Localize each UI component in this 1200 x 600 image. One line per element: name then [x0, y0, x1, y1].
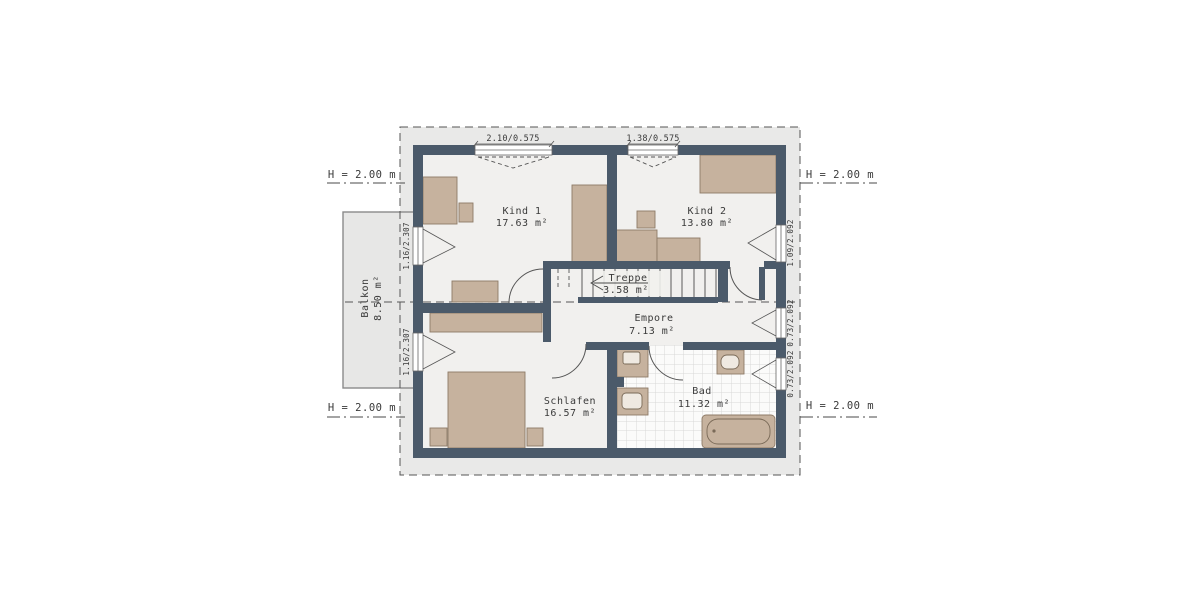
floor-plan-page: Kind 1 17.63 m² Kind 2 13.80 m² Treppe 3… [0, 0, 1200, 600]
chair-kind2 [637, 211, 655, 228]
washbasin-inner [622, 393, 642, 409]
height-mark-top-right: H = 2.00 m [806, 169, 874, 181]
height-mark-bottom-right: H = 2.00 m [806, 400, 874, 412]
room-label-empore: Empore [634, 313, 673, 324]
wardrobe-kind1 [572, 185, 607, 262]
wall-kind1-kind2 [607, 155, 617, 263]
room-area-kind1: 17.63 m² [496, 218, 548, 229]
wall-right-4 [776, 390, 786, 448]
door-leaf-kind2 [759, 267, 765, 300]
dresser-kind1 [452, 281, 498, 302]
dim-left-door1: 1.16/2.307 [402, 222, 411, 269]
height-mark-bottom-left: H = 2.00 m [328, 402, 396, 414]
bathtub-drain [712, 429, 715, 432]
wall-stair-east [718, 269, 728, 302]
wall-right-3 [776, 338, 786, 358]
room-area-empore: 7.13 m² [629, 326, 675, 337]
room-label-bad: Bad [692, 386, 712, 397]
toilet-inner [721, 355, 739, 369]
wall-stair-north [543, 261, 730, 269]
room-area-treppe: 3.58 m² [603, 285, 649, 296]
wall-right-2 [776, 262, 786, 308]
dim-right-window3: 0.73/2.092 [786, 350, 795, 397]
wall-top-3 [678, 145, 786, 155]
nightstand-kind1 [459, 203, 473, 222]
bed-kind1 [423, 177, 457, 224]
wall-bad-jog [607, 377, 624, 387]
bath-cabinet-inner [623, 352, 640, 364]
bed-schlafen [448, 372, 525, 448]
wall-left-1 [413, 155, 423, 227]
room-label-treppe: Treppe [608, 273, 647, 284]
dim-right-window2: 0.73/2.092 [786, 299, 795, 346]
wall-left-2 [413, 265, 423, 333]
wall-empore-south-1 [586, 342, 649, 350]
wall-left-3 [413, 371, 423, 458]
desk-kind2-a [615, 230, 657, 262]
nightstand-schlafen-right [527, 428, 543, 446]
dim-top-window2: 1.38/0.575 [626, 134, 679, 144]
room-label-kind1: Kind 1 [502, 206, 541, 217]
wall-top-2 [552, 145, 628, 155]
wall-top-1 [413, 145, 475, 155]
height-mark-top-left: H = 2.00 m [328, 169, 396, 181]
room-label-kind2: Kind 2 [687, 206, 726, 217]
floor-plan: Kind 1 17.63 m² Kind 2 13.80 m² Treppe 3… [0, 0, 1200, 600]
wardrobe-kind2 [700, 155, 776, 193]
room-area-bad: 11.32 m² [678, 399, 730, 410]
wall-right-1 [776, 155, 786, 225]
room-area-balkon: 8.50 m² [373, 275, 384, 321]
room-label-schlafen: Schlafen [544, 396, 596, 407]
nightstand-schlafen-left [430, 428, 447, 446]
dim-left-door2: 1.16/2.307 [402, 328, 411, 375]
room-label-balkon: Balkon [360, 278, 371, 317]
sideboard-schlafen [430, 313, 542, 332]
room-area-schlafen: 16.57 m² [544, 408, 596, 419]
wall-empore-south-2 [683, 342, 776, 350]
wall-stair-north-stub [764, 261, 776, 269]
room-area-kind2: 13.80 m² [681, 218, 733, 229]
desk-kind2-b [657, 238, 700, 262]
wall-stair-south [578, 297, 718, 303]
wall-bottom [413, 448, 786, 458]
wall-kind1-schlafen [423, 303, 543, 313]
dim-top-window1: 2.10/0.575 [486, 134, 539, 144]
wall-schlafen-bad [607, 342, 617, 448]
wall-pier-center [543, 261, 551, 342]
dim-right-window1: 1.09/2.092 [786, 219, 795, 266]
